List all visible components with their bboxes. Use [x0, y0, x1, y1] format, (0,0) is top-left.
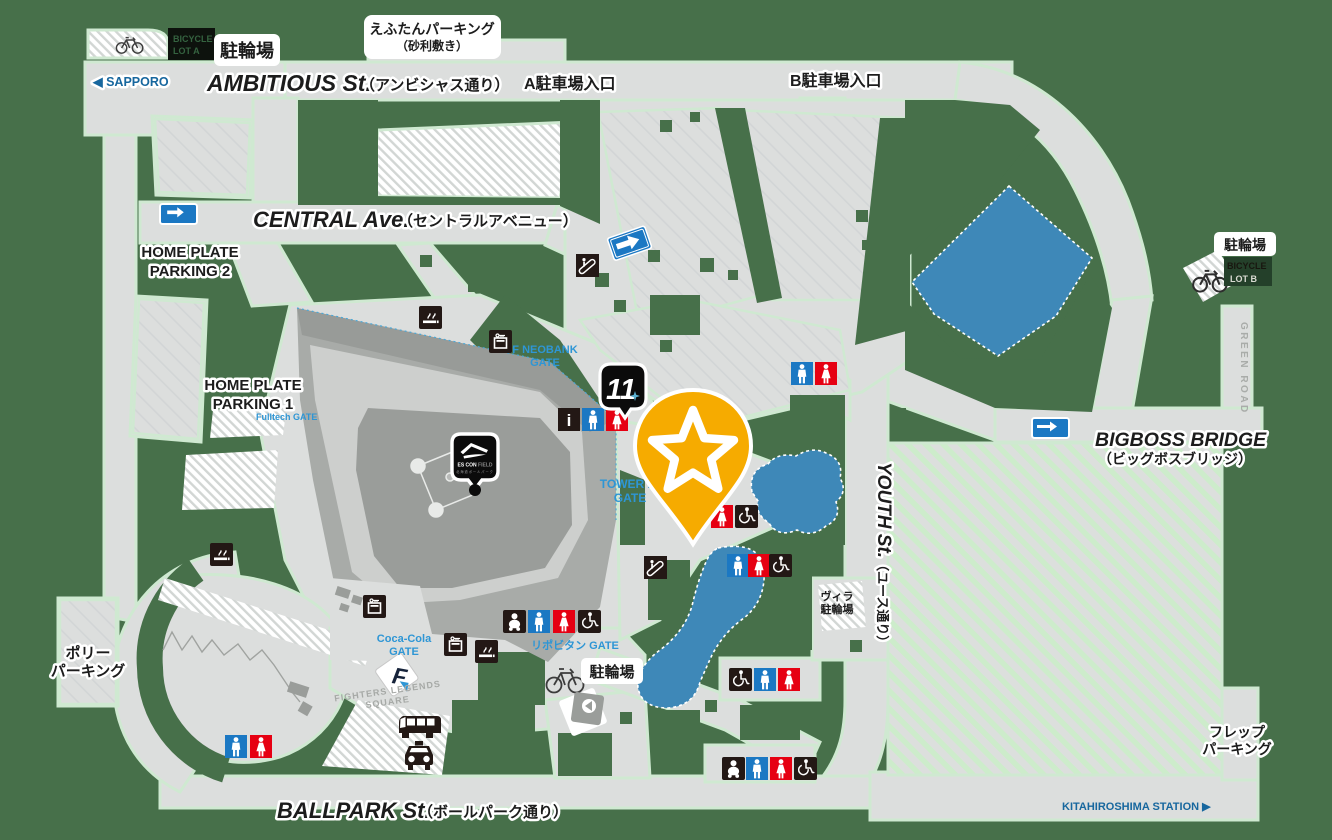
- svg-text:HOME PLATE: HOME PLATE: [141, 244, 238, 261]
- svg-text:PARKING 1: PARKING 1: [213, 396, 294, 413]
- svg-text:YOUTH St.（ユース通り）: YOUTH St.（ユース通り）: [873, 462, 894, 648]
- svg-text:（アンビシャス通り）: （アンビシャス通り）: [360, 76, 509, 94]
- svg-text:北海道ボールパーク: 北海道ボールパーク: [456, 469, 494, 474]
- svg-text:HOME PLATE: HOME PLATE: [204, 377, 301, 394]
- svg-text:（ビッグボスブリッジ）: （ビッグボスブリッジ）: [1098, 451, 1252, 467]
- svg-text:えふたんパーキング: えふたんパーキング: [369, 21, 495, 37]
- svg-text:リポビタン GATE: リポビタン GATE: [531, 638, 619, 652]
- svg-text:GREEN ROAD: GREEN ROAD: [1238, 322, 1249, 415]
- svg-text:駐輪場: 駐輪場: [220, 40, 274, 61]
- svg-text:CENTRAL Ave.: CENTRAL Ave.: [253, 207, 409, 232]
- svg-text:（砂利敷き）: （砂利敷き）: [396, 38, 468, 53]
- svg-text:AMBITIOUS St.: AMBITIOUS St.: [206, 70, 372, 96]
- svg-text:パーキング: パーキング: [1202, 741, 1272, 757]
- svg-text:BICYCLE: BICYCLE: [1227, 261, 1267, 271]
- svg-text:PARKING 2: PARKING 2: [150, 263, 231, 280]
- svg-text:ヴィラ: ヴィラ: [821, 589, 854, 603]
- svg-text:（セントラルアベニュー）: （セントラルアベニュー）: [398, 212, 578, 230]
- svg-text:BIGBOSS BRIDGE: BIGBOSS BRIDGE: [1095, 429, 1267, 451]
- svg-text:◀ SAPPORO: ◀ SAPPORO: [92, 75, 169, 89]
- svg-text:KITAHIROSHIMA STATION ▶: KITAHIROSHIMA STATION ▶: [1062, 801, 1211, 813]
- svg-text:駐輪場: 駐輪場: [821, 602, 854, 616]
- svg-text:LOT B: LOT B: [1230, 274, 1257, 284]
- svg-text:Fulltech GATE: Fulltech GATE: [256, 412, 317, 422]
- svg-text:GATE: GATE: [614, 491, 646, 505]
- svg-text:フレップ: フレップ: [1209, 724, 1266, 740]
- svg-text:F NEOBANK: F NEOBANK: [512, 344, 577, 356]
- svg-text:（ボールパーク通り）: （ボールパーク通り）: [418, 803, 568, 821]
- svg-text:11: 11: [606, 374, 636, 406]
- svg-text:GATE: GATE: [530, 357, 560, 369]
- svg-text:駐輪場: 駐輪場: [589, 663, 634, 681]
- svg-text:GATE: GATE: [389, 646, 419, 658]
- svg-text:B駐車場入口: B駐車場入口: [790, 71, 882, 90]
- svg-text:駐輪場: 駐輪場: [1224, 237, 1266, 253]
- svg-text:パーキング: パーキング: [51, 662, 126, 680]
- svg-text:BALLPARK St.: BALLPARK St.: [277, 798, 431, 823]
- svg-text:Coca-Cola: Coca-Cola: [377, 633, 432, 645]
- svg-text:ポリー: ポリー: [65, 644, 110, 662]
- svg-text:LOT A: LOT A: [173, 46, 200, 56]
- svg-text:ES CON FIELD: ES CON FIELD: [457, 463, 492, 469]
- svg-text:A駐車場入口: A駐車場入口: [524, 74, 616, 93]
- svg-text:BICYCLE: BICYCLE: [173, 34, 213, 44]
